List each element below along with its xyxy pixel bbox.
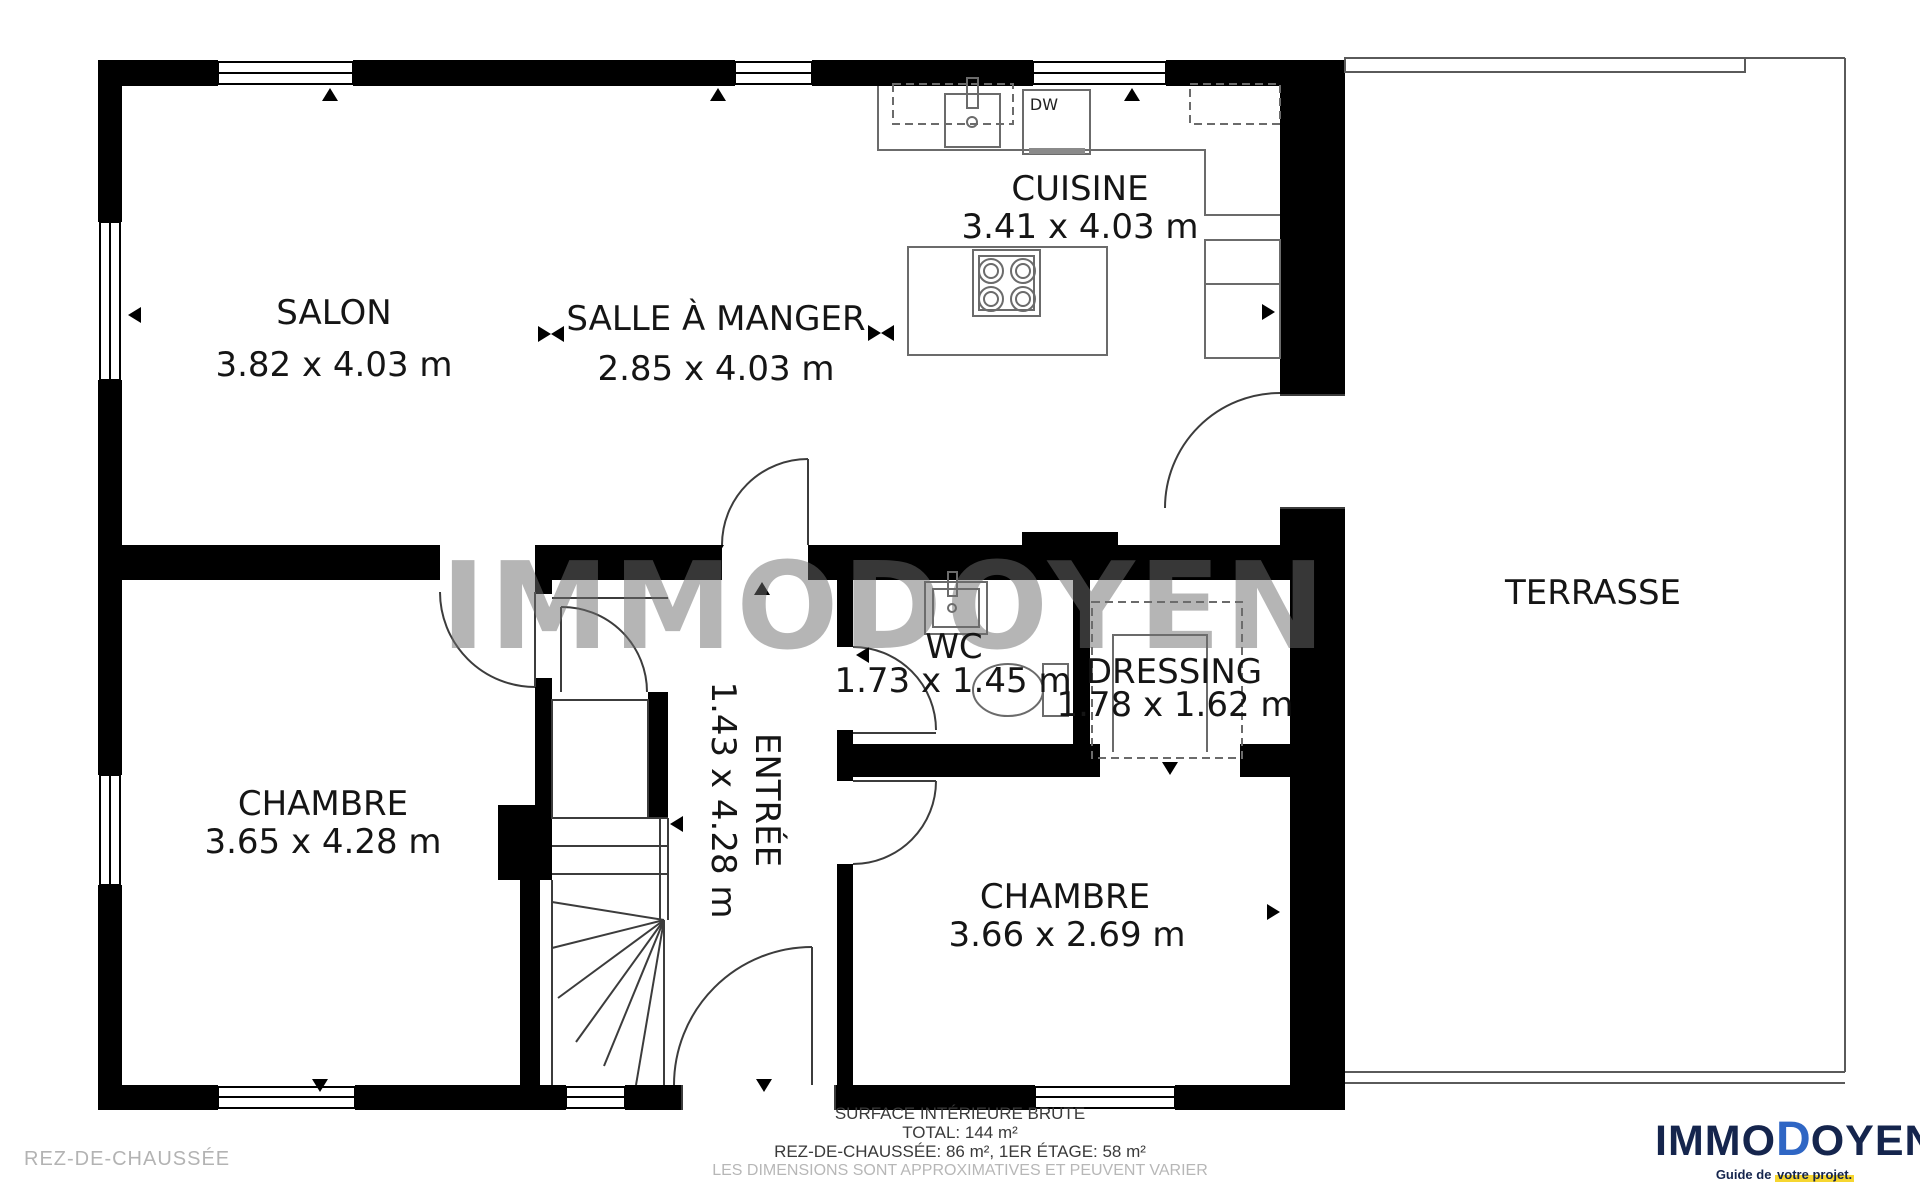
upper-cabinet-dashed-2 [1190, 84, 1280, 124]
room-label-chambre-1: CHAMBRE [238, 784, 408, 824]
room-dims-dressing: 1.78 x 1.62 m [1056, 685, 1293, 725]
room-dims-wc: 1.73 x 1.45 m [834, 661, 1071, 701]
upper-cabinet-dashed-1 [893, 84, 1013, 124]
surface-title: SURFACE INTÉRIEURE BRUTE [0, 1104, 1920, 1123]
immodoyen-logo: IMMODOYEN® Guide de votre projet. [1655, 1112, 1915, 1182]
room-separator-salon [538, 326, 564, 342]
logo-d-icon: D [1776, 1113, 1811, 1166]
logo-tagline-highlight: votre projet. [1775, 1167, 1854, 1182]
door-terrace [1165, 393, 1345, 508]
room-label-salle-a-manger: SALLE À MANGER [566, 298, 865, 339]
room-label-terrasse: TERRASSE [1504, 573, 1681, 613]
island [908, 247, 1107, 355]
surface-summary: SURFACE INTÉRIEURE BRUTE TOTAL: 144 m² R… [0, 1104, 1920, 1180]
window-top-1 [218, 62, 353, 84]
room-label-salon: SALON [276, 293, 391, 333]
surface-disclaimer: LES DIMENSIONS SONT APPROXIMATIVES ET PE… [0, 1161, 1920, 1180]
room-separator-cuisine [868, 325, 894, 341]
window-top-2 [735, 62, 812, 84]
floor-label: REZ-DE-CHAUSSÉE [24, 1148, 230, 1171]
logo-text-immo: IMMO [1655, 1117, 1776, 1165]
tall-cabinets [1205, 240, 1280, 358]
room-dims-chambre-1: 3.65 x 4.28 m [204, 822, 441, 862]
terrace-outline [1345, 58, 1845, 1083]
room-label-cuisine: CUISINE [1011, 169, 1148, 209]
logo-tagline: Guide de votre projet. [1655, 1167, 1915, 1182]
room-labels: SALON 3.82 x 4.03 m SALLE À MANGER 2.85 … [204, 95, 1681, 955]
surface-detail: REZ-DE-CHAUSSÉE: 86 m², 1ER ÉTAGE: 58 m² [0, 1142, 1920, 1161]
sink-icon [945, 78, 1000, 147]
floor-plan-page: IMMODOYEN SALON 3.82 x 4.03 m SALLE À MA… [0, 0, 1920, 1200]
window-left-salon [100, 222, 120, 380]
window-top-3 [1033, 62, 1166, 84]
surface-total: TOTAL: 144 m² [0, 1123, 1920, 1142]
window-left-chambre [100, 775, 120, 885]
room-dims-salon: 3.82 x 4.03 m [215, 345, 452, 385]
floor-plan: IMMODOYEN SALON 3.82 x 4.03 m SALLE À MA… [0, 0, 1920, 1200]
stove-icon [973, 250, 1040, 316]
room-dims-entree: 1.43 x 4.28 m [703, 681, 743, 918]
door-front [674, 947, 835, 1110]
logo-tagline-prefix: Guide de [1716, 1167, 1775, 1182]
room-label-entree: ENTRÉE [747, 733, 788, 867]
room-dims-salle-a-manger: 2.85 x 4.03 m [597, 349, 834, 389]
dishwasher-label: DW [1030, 95, 1058, 114]
door-chambre2 [853, 781, 936, 864]
room-dims-chambre-2: 3.66 x 2.69 m [948, 915, 1185, 955]
room-label-chambre-2: CHAMBRE [980, 877, 1150, 917]
room-dims-cuisine: 3.41 x 4.03 m [961, 207, 1198, 247]
logo-text-oyen: OYEN [1811, 1117, 1920, 1165]
door-sejour-entree [722, 459, 808, 545]
